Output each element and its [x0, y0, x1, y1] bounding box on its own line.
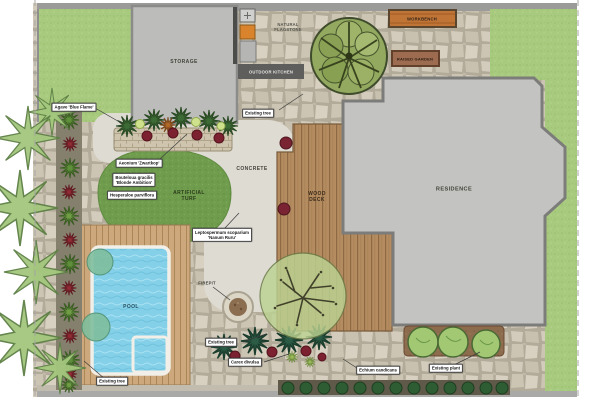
wood-deck-label-line2: DECK — [308, 197, 326, 203]
existing-tree-deck — [260, 253, 346, 339]
label-carex-divulsa: Carex divulsa — [228, 358, 262, 367]
label-leptospermum-scoparium: Leptospermum scoparium 'Nanum Ruru' — [192, 228, 252, 242]
existing-plants-row — [408, 327, 500, 358]
pool-label: POOL — [123, 304, 139, 310]
label-aeonium-zwartkop: Aeonium 'Zwartkop' — [116, 159, 163, 168]
potted-plant — [280, 137, 292, 149]
raised-garden-label: RAISED GARDEN — [397, 56, 433, 61]
label-agave-blue-flame: Agave 'Blue Flame' — [51, 103, 96, 112]
firepit — [223, 292, 253, 322]
residence-label: RESIDENCE — [436, 187, 472, 194]
storage-label: STORAGE — [170, 59, 197, 65]
label-echium-candicans: Echium candicans — [356, 366, 400, 375]
lawn-edge — [37, 9, 39, 122]
label-bouteloua-gracilis: Bouteloua gracilis 'Blonde Ambition' — [112, 173, 155, 187]
hedge-row — [278, 380, 510, 395]
plan-drawing — [0, 0, 600, 400]
existing-tree-canopy — [82, 313, 110, 341]
large-tree — [311, 18, 387, 94]
label-existing-tree-top: Existing tree — [242, 109, 274, 118]
artificial-turf-label-line2: TURF — [173, 196, 205, 202]
outdoor-kitchen-label: OUTDOOR KITCHEN — [249, 69, 293, 74]
label-existing-tree-mid: Existing tree — [205, 338, 237, 347]
grill-unit — [240, 25, 255, 39]
spa — [133, 337, 167, 372]
natural-flagstone-label-line2: FLAGSTONE — [274, 27, 302, 32]
potted-plant — [278, 203, 290, 215]
firepit-label: FIREPIT — [198, 280, 215, 285]
fridge-unit — [240, 41, 256, 62]
concrete-label: CONCRETE — [236, 166, 267, 172]
existing-tree-canopy — [87, 249, 113, 275]
label-existing-plant: Existing plant — [429, 364, 463, 373]
label-hesperaloe-parviflora: Hesperaloe parviflora — [107, 191, 157, 200]
landscape-plan: STORAGE NATURAL FLAGSTONE OUTDOOR KITCHE… — [0, 0, 600, 400]
label-existing-tree-pool: Existing tree — [96, 377, 128, 386]
workbench-label: WORKBENCH — [407, 16, 437, 21]
